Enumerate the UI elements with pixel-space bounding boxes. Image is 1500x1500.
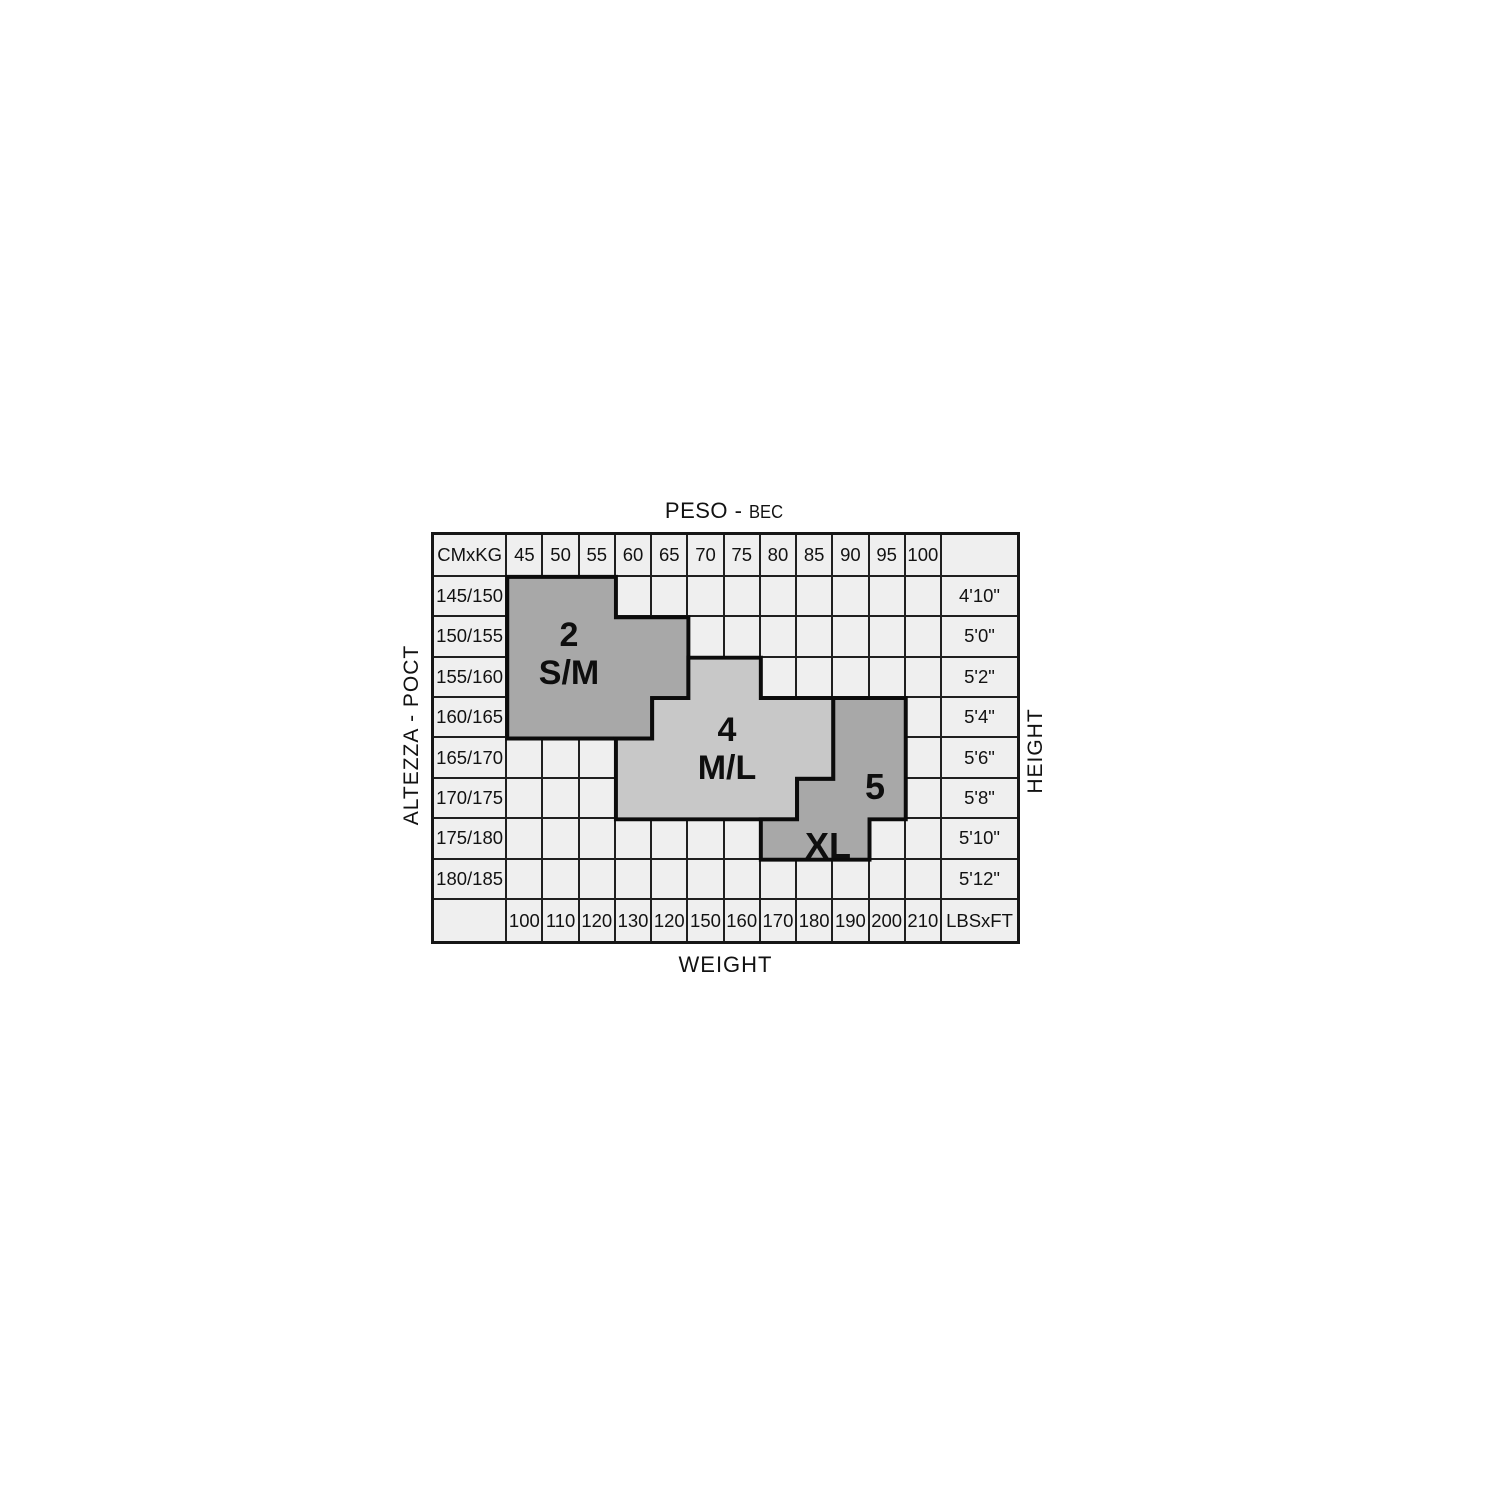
- grid-cell: [833, 617, 869, 657]
- lbs-footer-cell: 210: [906, 900, 942, 941]
- grid-cell: [797, 658, 833, 698]
- grid-cell: [543, 860, 579, 900]
- grid-cell: [688, 658, 724, 698]
- grid-cell: [507, 698, 543, 738]
- lbs-footer-cell: 190: [833, 900, 869, 941]
- lbs-footer-cell: 170: [761, 900, 797, 941]
- grid-cell: [616, 738, 652, 778]
- size-region-label-sm: 2S/M: [539, 616, 599, 692]
- grid-cell: [507, 738, 543, 778]
- grid-cell: [616, 577, 652, 617]
- grid-cell: [833, 698, 869, 738]
- size-region-label-xl: XL: [805, 826, 851, 866]
- grid-cell: [616, 698, 652, 738]
- grid-cell: [507, 577, 543, 617]
- grid-cell: [688, 860, 724, 900]
- grid-cell: [652, 860, 688, 900]
- kg-header-cell: 55: [580, 535, 616, 577]
- ft-row-label: 4'10": [942, 577, 1017, 617]
- grid-cell: [761, 860, 797, 900]
- grid-cell: [652, 738, 688, 778]
- grid-cell: [616, 860, 652, 900]
- grid-cell: [507, 819, 543, 859]
- grid-cell: [580, 779, 616, 819]
- grid-cell: [507, 860, 543, 900]
- grid-cell: [616, 819, 652, 859]
- chart-title-primary: PESO -: [665, 498, 743, 523]
- grid-cell: [906, 860, 942, 900]
- grid-cell: [688, 617, 724, 657]
- grid-cell: [761, 738, 797, 778]
- lbs-footer-cell: [434, 900, 507, 941]
- ft-row-label: 5'10": [942, 819, 1017, 859]
- grid-cell: [688, 819, 724, 859]
- kg-header-cell: 95: [870, 535, 906, 577]
- grid-cell: [652, 779, 688, 819]
- grid-cell: [543, 577, 579, 617]
- grid-cell: [797, 738, 833, 778]
- lbs-footer-cell: 120: [652, 900, 688, 941]
- kg-header-cell: 70: [688, 535, 724, 577]
- kg-header-cell: [942, 535, 1017, 577]
- kg-header-cell: 100: [906, 535, 942, 577]
- grid-cell: [725, 577, 761, 617]
- grid-cell: [725, 658, 761, 698]
- grid-cell: [906, 738, 942, 778]
- cm-row-label: 175/180: [434, 819, 507, 859]
- size-grid: CMxKG4550556065707580859095100145/1504'1…: [431, 532, 1020, 944]
- grid-cell: [761, 577, 797, 617]
- size-region-label-line: M/L: [698, 749, 757, 787]
- grid-cell: [652, 658, 688, 698]
- ft-row-label: 5'6": [942, 738, 1017, 778]
- grid-cell: [906, 698, 942, 738]
- cm-row-label: 145/150: [434, 577, 507, 617]
- right-axis-label: HEIGHT: [1024, 708, 1048, 793]
- cm-row-label: 165/170: [434, 738, 507, 778]
- grid-cell: [797, 779, 833, 819]
- lbs-footer-cell: 120: [580, 900, 616, 941]
- grid-cell: [725, 617, 761, 657]
- grid-cell: [797, 617, 833, 657]
- size-region-label-ml: 4M/L: [698, 711, 757, 787]
- lbs-footer-cell: 130: [616, 900, 652, 941]
- grid-cell: [543, 819, 579, 859]
- grid-cell: [797, 577, 833, 617]
- chart-title-secondary: BEC: [749, 502, 783, 523]
- grid-cell: [543, 779, 579, 819]
- lbs-unit-cell: LBSxFT: [942, 900, 1017, 941]
- grid-cell: [870, 577, 906, 617]
- grid-cell: [870, 698, 906, 738]
- ft-row-label: 5'4": [942, 698, 1017, 738]
- size-region-label-five: 5: [865, 767, 885, 807]
- cm-row-label: 170/175: [434, 779, 507, 819]
- grid-cell: [906, 779, 942, 819]
- kg-header-cell: 65: [652, 535, 688, 577]
- cm-row-label: 155/160: [434, 658, 507, 698]
- grid-cell: [870, 819, 906, 859]
- grid-cell: [797, 698, 833, 738]
- grid-cell: [507, 779, 543, 819]
- lbs-footer-cell: 200: [870, 900, 906, 941]
- grid-cell: [906, 658, 942, 698]
- grid-cell: [543, 738, 579, 778]
- grid-cell: [833, 577, 869, 617]
- grid-cell: [906, 577, 942, 617]
- lbs-footer-cell: 180: [797, 900, 833, 941]
- grid-cell: [761, 658, 797, 698]
- grid-cell: [543, 698, 579, 738]
- lbs-footer-cell: 110: [543, 900, 579, 941]
- size-region-label-line: 4: [698, 711, 757, 749]
- grid-cell: [580, 738, 616, 778]
- lbs-footer-cell: 160: [725, 900, 761, 941]
- size-chart-page: PESO - BEC ALTEZZA - POCT HEIGHT CMxKG45…: [0, 0, 1500, 1500]
- grid-cell: [652, 698, 688, 738]
- grid-cell: [761, 698, 797, 738]
- grid-cell: [616, 617, 652, 657]
- grid-cell: [906, 617, 942, 657]
- grid-cell: [580, 860, 616, 900]
- size-region-label-line: S/M: [539, 654, 599, 692]
- lbs-footer-cell: 150: [688, 900, 724, 941]
- grid-cell: [580, 577, 616, 617]
- ft-row-label: 5'0": [942, 617, 1017, 657]
- chart-title: PESO - BEC: [431, 498, 1020, 524]
- grid-cell: [688, 577, 724, 617]
- lbs-footer-cell: 100: [507, 900, 543, 941]
- kg-header-cell: 85: [797, 535, 833, 577]
- kg-header-cell: 80: [761, 535, 797, 577]
- grid-cell: [833, 658, 869, 698]
- grid-cell: [652, 819, 688, 859]
- size-region-label-line: XL: [805, 826, 851, 866]
- ft-row-label: 5'12": [942, 860, 1017, 900]
- cm-row-label: 180/185: [434, 860, 507, 900]
- cm-row-label: 160/165: [434, 698, 507, 738]
- cm-row-label: 150/155: [434, 617, 507, 657]
- size-region-label-line: 5: [865, 767, 885, 807]
- grid-cell: [580, 819, 616, 859]
- size-region-label-line: 2: [539, 616, 599, 654]
- kg-unit-cell: CMxKG: [434, 535, 507, 577]
- kg-header-cell: 45: [507, 535, 543, 577]
- grid-cell: [725, 819, 761, 859]
- grid-cell: [652, 617, 688, 657]
- kg-header-cell: 60: [616, 535, 652, 577]
- grid-cell: [761, 819, 797, 859]
- kg-header-cell: 50: [543, 535, 579, 577]
- ft-row-label: 5'8": [942, 779, 1017, 819]
- grid-cell: [906, 819, 942, 859]
- grid-cell: [580, 698, 616, 738]
- grid-cell: [652, 577, 688, 617]
- ft-row-label: 5'2": [942, 658, 1017, 698]
- grid-cell: [761, 779, 797, 819]
- grid-cell: [870, 860, 906, 900]
- grid-cell: [870, 658, 906, 698]
- grid-cell: [761, 617, 797, 657]
- kg-header-cell: 90: [833, 535, 869, 577]
- left-axis-label: ALTEZZA - POCT: [400, 645, 424, 825]
- grid-cell: [870, 617, 906, 657]
- grid-cell: [616, 658, 652, 698]
- bottom-axis-label: WEIGHT: [431, 952, 1020, 978]
- grid-cell: [616, 779, 652, 819]
- kg-header-cell: 75: [725, 535, 761, 577]
- grid-cell: [725, 860, 761, 900]
